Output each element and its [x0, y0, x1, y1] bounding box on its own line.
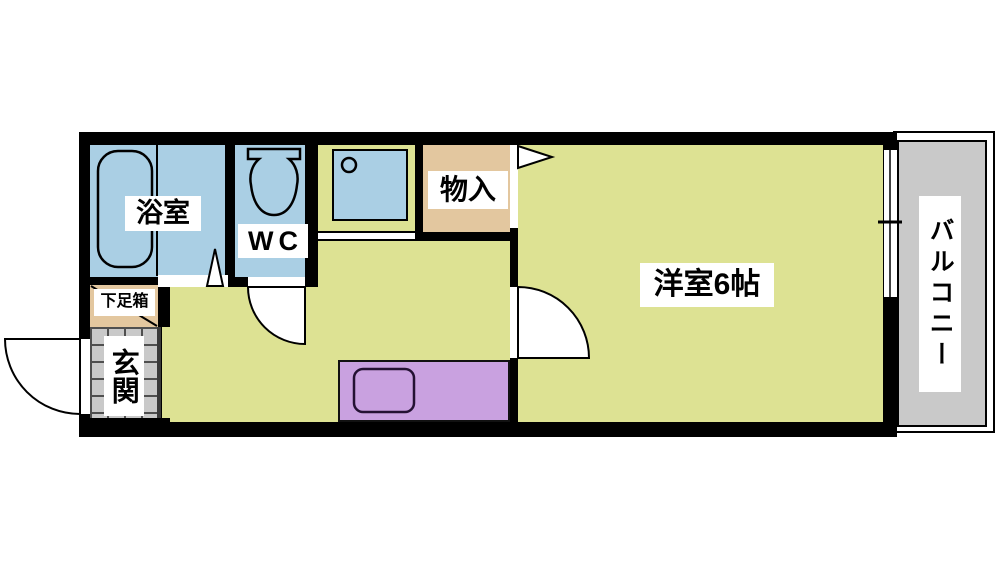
kitchen-hall-floor-left	[162, 327, 170, 418]
balcony-label: バルコニー	[919, 196, 961, 392]
wc-doorway	[248, 277, 305, 287]
wc-label: WC	[238, 224, 308, 258]
entrance-doorway	[79, 339, 90, 414]
shoe-box-label: 下足箱	[94, 289, 155, 316]
washer-pan-icon	[332, 149, 408, 221]
bath-label: 浴室	[125, 196, 201, 231]
floor-plan: 浴室 WC 物入 洋室6帖 下足箱 玄関 バルコニー	[0, 0, 1000, 562]
storage-doorway	[510, 145, 518, 228]
entrance-label: 玄関	[104, 336, 144, 416]
sliding-window	[884, 150, 897, 297]
bath-doorway	[158, 275, 228, 287]
kitchen-hall-floor-upper	[318, 241, 510, 287]
entrance-door-swing-arc	[5, 339, 80, 414]
washer-niche-opening	[318, 231, 415, 241]
storage-label: 物入	[428, 171, 508, 209]
kitchen-counter	[338, 360, 510, 422]
main-room-doorway	[510, 287, 518, 358]
entrance-step-edge	[157, 327, 161, 418]
main-room-label: 洋室6帖	[640, 263, 774, 307]
